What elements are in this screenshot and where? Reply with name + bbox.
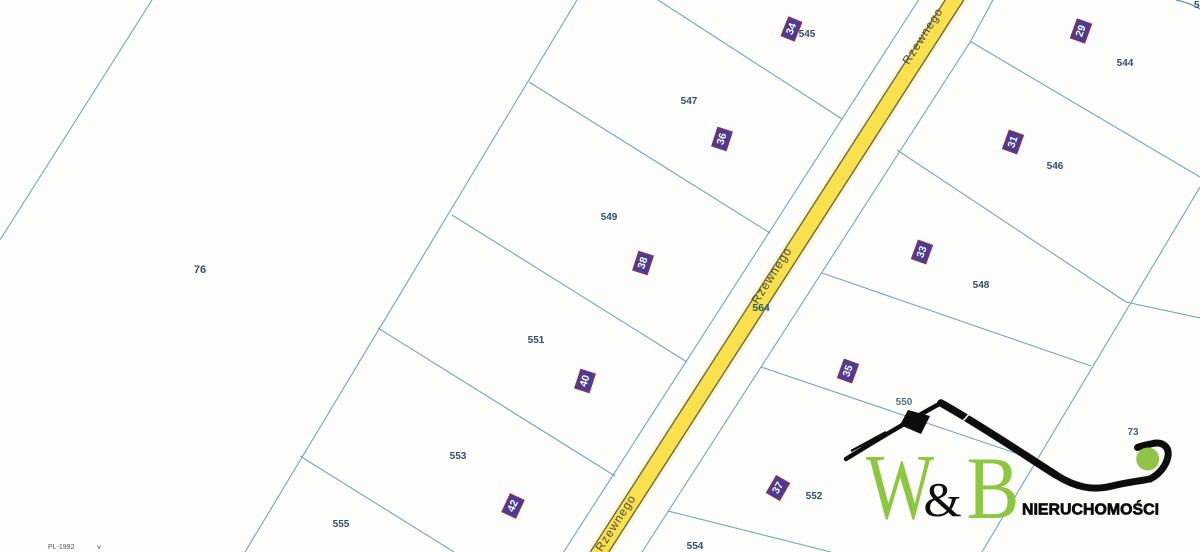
svg-text:NIERUCHOMOŚCI: NIERUCHOMOŚCI	[1022, 500, 1159, 519]
svg-text:73: 73	[1127, 427, 1139, 438]
svg-text:76: 76	[194, 264, 206, 276]
svg-text:552: 552	[806, 491, 823, 502]
svg-text:v: v	[97, 542, 101, 551]
svg-text:545: 545	[799, 29, 816, 40]
svg-text:554: 554	[687, 541, 704, 552]
svg-text:B: B	[967, 440, 1020, 538]
svg-text:549: 549	[601, 212, 618, 223]
svg-text:551: 551	[528, 335, 545, 346]
svg-text:547: 547	[681, 96, 698, 107]
svg-text:553: 553	[450, 451, 467, 462]
svg-text:&: &	[924, 472, 962, 527]
svg-text:550: 550	[896, 397, 913, 408]
svg-text:PL-1992: PL-1992	[48, 544, 75, 551]
svg-text:546: 546	[1047, 161, 1064, 172]
svg-text:544: 544	[1117, 58, 1134, 69]
svg-text:5: 5	[1194, 0, 1200, 11]
svg-text:548: 548	[973, 280, 990, 291]
svg-text:564: 564	[752, 302, 770, 314]
svg-text:555: 555	[333, 519, 350, 530]
